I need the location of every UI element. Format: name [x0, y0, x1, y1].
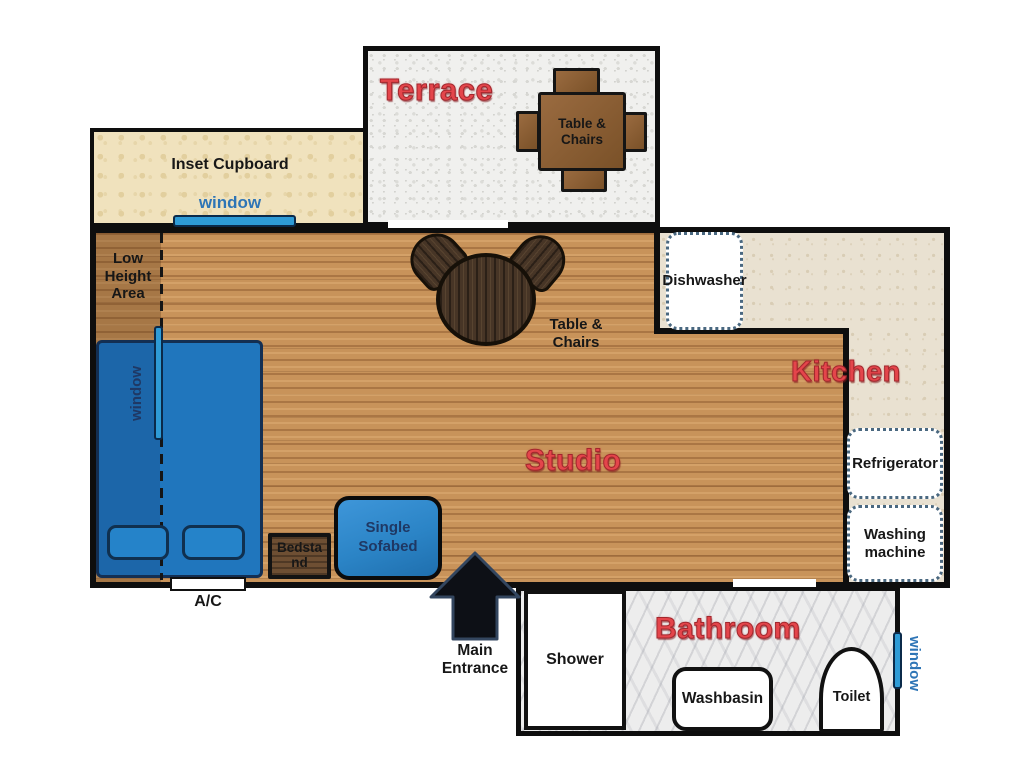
bedstand: Bedstand: [268, 533, 331, 579]
shower-label: Shower: [546, 651, 604, 670]
cupboard-window-label: window: [190, 193, 270, 213]
refrigerator-label: Refrigerator: [852, 455, 938, 473]
bathroom-window-label: window: [906, 624, 923, 702]
washing-machine-label: Washing machine: [859, 526, 931, 561]
ac-label: A/C: [168, 593, 248, 612]
terrace-chair-top: [553, 68, 600, 95]
cupboard-window: [173, 215, 296, 227]
bathroom-window: [893, 632, 902, 689]
kitchen-wall-left: [654, 233, 660, 333]
shower: Shower: [524, 590, 626, 730]
washbasin-label: Washbasin: [682, 690, 763, 708]
studio-label: Studio: [525, 444, 621, 478]
studio-table: [436, 253, 536, 346]
dishwasher-label: Dishwasher: [662, 272, 746, 290]
dishwasher: Dishwasher: [666, 232, 743, 330]
studio-bathroom-opening: [733, 579, 816, 587]
low-height-area-label: Low Height Area: [97, 250, 159, 303]
single-sofabed: Single Sofabed: [334, 496, 442, 580]
terrace-door-opening: [388, 220, 508, 228]
toilet-label: Toilet: [833, 689, 871, 706]
bed-window: [154, 326, 163, 440]
bathroom-label: Bathroom: [655, 612, 801, 646]
main-entrance-label: Main Entrance: [425, 642, 525, 679]
sofabed-label: Single Sofabed: [353, 519, 423, 557]
terrace-label: Terrace: [380, 72, 493, 108]
washbasin: Washbasin: [672, 667, 773, 731]
ac-unit: [170, 577, 246, 591]
kitchen-label: Kitchen: [791, 356, 901, 389]
terrace-chair-left: [516, 111, 540, 152]
inset-cupboard-label: Inset Cupboard: [140, 156, 320, 175]
refrigerator: Refrigerator: [847, 428, 943, 499]
bed-pillow-right: [182, 525, 245, 560]
bed-window-label: window: [128, 344, 145, 444]
bed-pillow-left: [107, 525, 169, 560]
terrace-table-label: Table & Chairs: [551, 116, 613, 148]
main-entrance-arrow: [428, 550, 522, 642]
washing-machine: Washing machine: [847, 505, 943, 582]
floor-plan: Low Height Area Inset Cupboard window Te…: [0, 0, 1024, 763]
terrace-table: Table & Chairs: [538, 92, 626, 171]
studio-table-label: Table & Chairs: [538, 316, 614, 351]
bedstand-label: Bedstand: [274, 541, 326, 571]
